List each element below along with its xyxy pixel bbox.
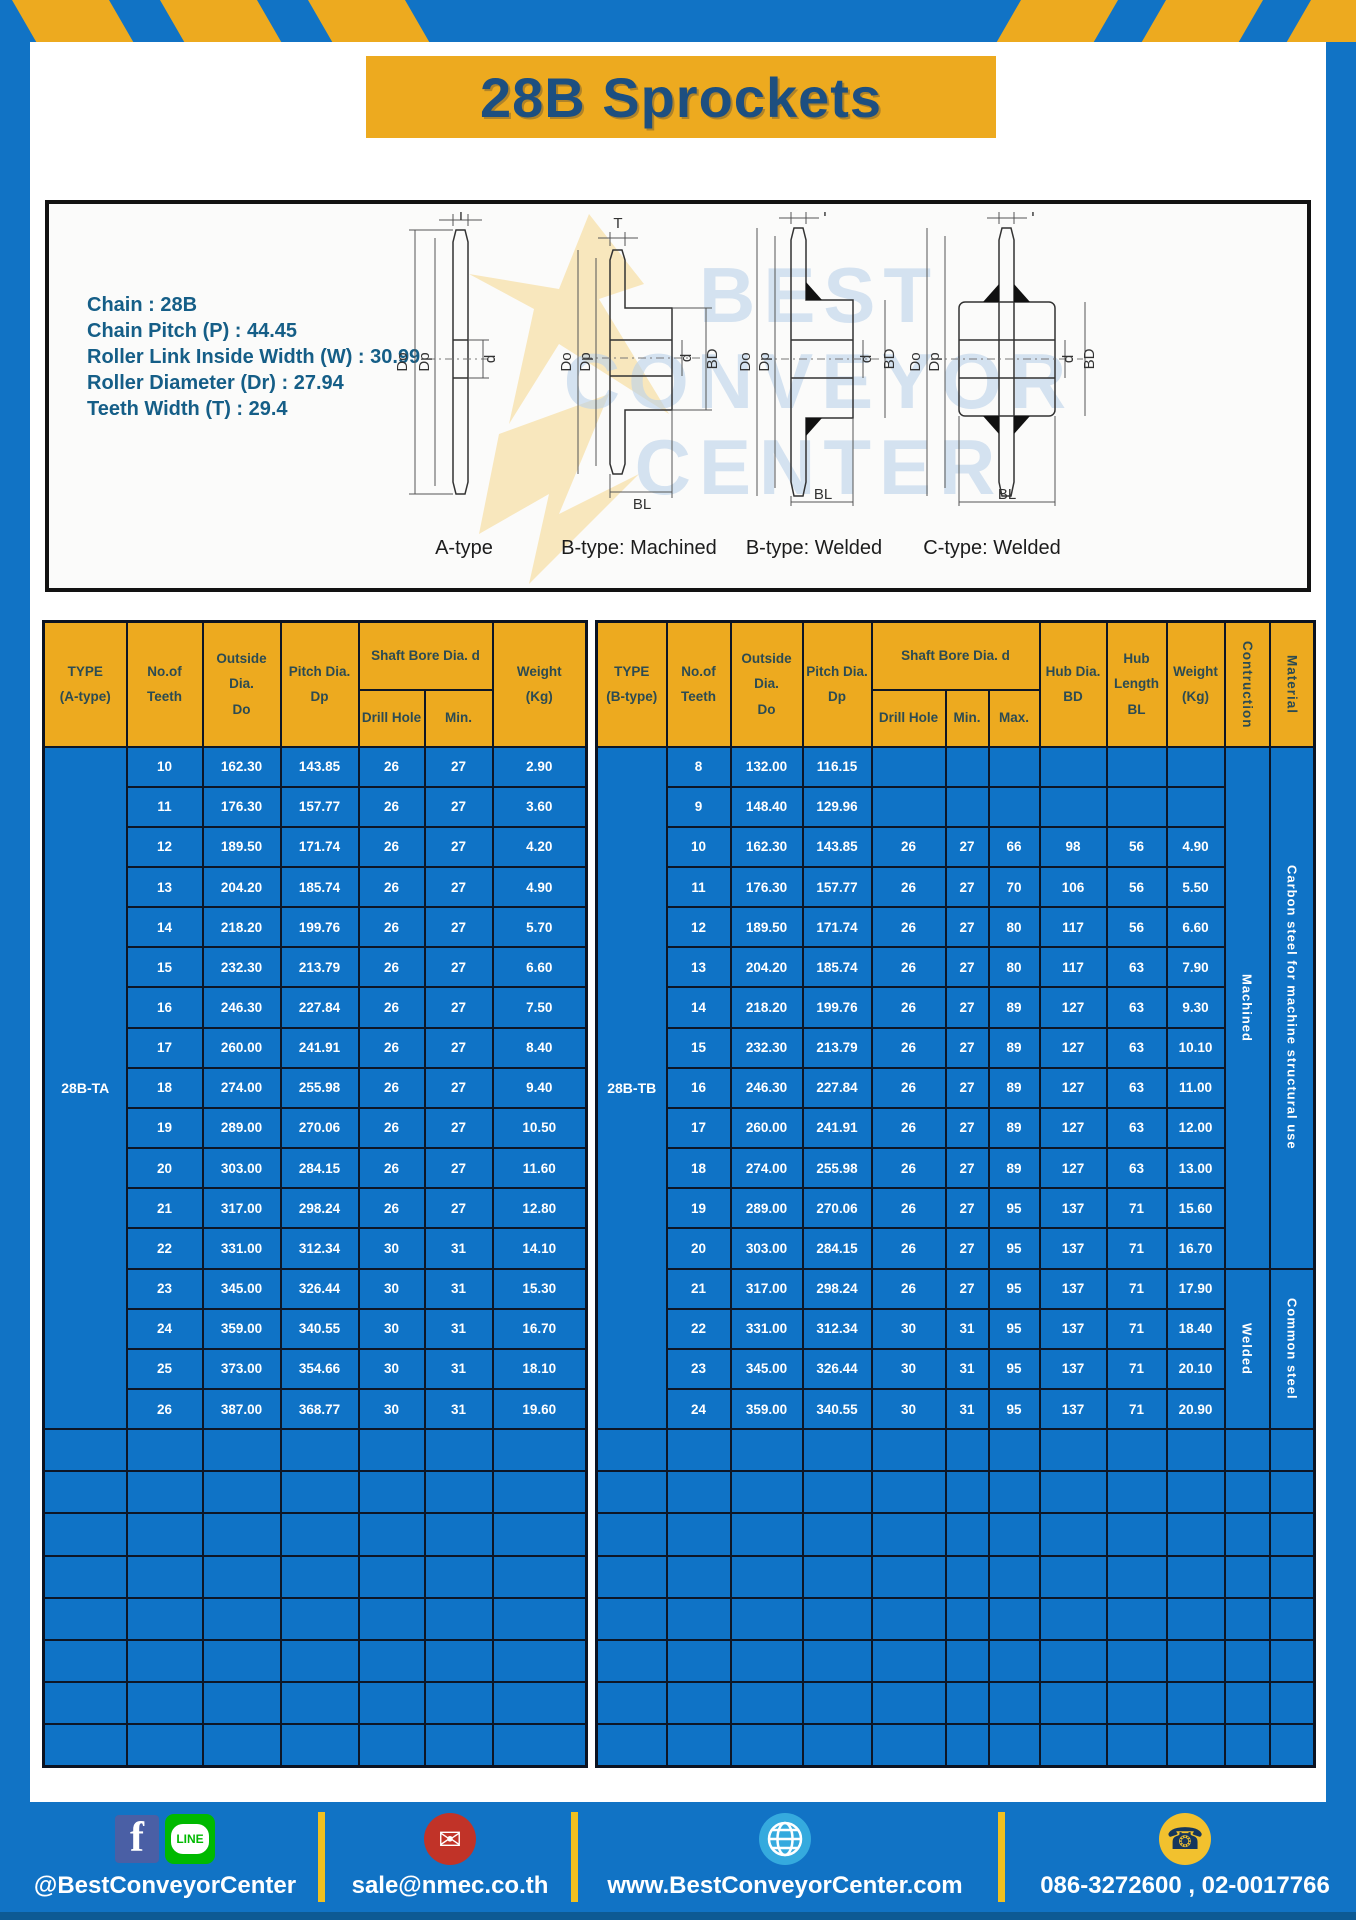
sprocket-table-a-type: TYPE (A-type) No.of Teeth Outside Dia. D…	[42, 620, 588, 1768]
cell-weight: 14.10	[493, 1228, 587, 1268]
material-cell: Common steel	[1270, 1269, 1315, 1430]
table-row: 12189.50171.74262780117566.60	[597, 907, 1315, 947]
cell-dp: 298.24	[803, 1269, 872, 1309]
empty-row	[44, 1471, 587, 1513]
cell-dp: 171.74	[803, 907, 872, 947]
cell-min: 27	[946, 987, 989, 1027]
table-row: 16246.30227.842627891276311.00	[597, 1068, 1315, 1108]
empty-cell	[872, 1513, 946, 1555]
cell-bd: 98	[1040, 827, 1107, 867]
cell-min: 31	[425, 1389, 493, 1429]
cell-min: 27	[946, 1028, 989, 1068]
empty-cell	[803, 1640, 872, 1682]
cell-min: 31	[425, 1309, 493, 1349]
empty-cell	[1225, 1471, 1270, 1513]
cell-drill: 26	[872, 947, 946, 987]
empty-cell	[731, 1429, 803, 1471]
empty-cell	[44, 1556, 127, 1598]
cell-max: 95	[989, 1389, 1040, 1429]
cell-drill: 26	[872, 1188, 946, 1228]
col-header-drill-hole: Drill Hole	[359, 690, 425, 747]
cell-drill: 30	[359, 1269, 425, 1309]
cell-min: 27	[425, 827, 493, 867]
empty-cell	[425, 1471, 493, 1513]
cell-min: 31	[425, 1349, 493, 1389]
cell-teeth: 19	[127, 1108, 203, 1148]
empty-cell	[989, 1598, 1040, 1640]
spec-line: Chain : 28B	[87, 292, 420, 318]
cell-drill: 30	[872, 1349, 946, 1389]
cell-bd: 117	[1040, 907, 1107, 947]
type-cell: 28B-TA	[44, 747, 127, 1430]
cell-teeth: 20	[127, 1148, 203, 1188]
empty-row	[44, 1640, 587, 1682]
empty-cell	[1225, 1513, 1270, 1555]
empty-cell	[359, 1513, 425, 1555]
table-row: 13204.20185.74262780117637.90	[597, 947, 1315, 987]
facebook-icon: f	[115, 1815, 159, 1863]
cell-min	[946, 747, 989, 787]
empty-cell	[203, 1724, 281, 1766]
cell-min: 27	[946, 1228, 989, 1268]
cell-min: 27	[946, 907, 989, 947]
empty-cell	[731, 1598, 803, 1640]
bottom-edge-strip	[0, 1912, 1356, 1920]
dim-bd: BD	[1081, 348, 1097, 369]
cell-drill	[872, 787, 946, 827]
cell-teeth: 16	[127, 987, 203, 1027]
cell-do: 359.00	[731, 1389, 803, 1429]
cell-teeth: 13	[127, 867, 203, 907]
cell-teeth: 21	[127, 1188, 203, 1228]
empty-cell	[667, 1640, 731, 1682]
cell-weight: 4.90	[493, 867, 587, 907]
cell-bl: 71	[1107, 1228, 1167, 1268]
empty-cell	[127, 1724, 203, 1766]
col-header-weight: Weight (Kg)	[1167, 622, 1225, 747]
cell-min: 27	[425, 747, 493, 787]
cell-teeth: 10	[127, 747, 203, 787]
diagram-a-type: Do Dp d T A-type	[379, 212, 549, 588]
table-row: 10162.30143.8526276698564.90	[597, 827, 1315, 867]
empty-row	[44, 1513, 587, 1555]
cell-drill: 26	[872, 1148, 946, 1188]
cell-dp: 157.77	[803, 867, 872, 907]
cell-weight: 9.30	[1167, 987, 1225, 1027]
cell-teeth: 13	[667, 947, 731, 987]
empty-cell	[989, 1429, 1040, 1471]
footer-email: sale@nmec.co.th	[335, 1872, 565, 1900]
empty-cell	[1107, 1598, 1167, 1640]
cell-weight: 4.90	[1167, 827, 1225, 867]
page-canvas: 28B Sprockets BEST CONVEYOR CENTER Chain…	[0, 0, 1356, 1920]
empty-cell	[667, 1724, 731, 1766]
cell-drill: 26	[872, 907, 946, 947]
empty-cell	[872, 1682, 946, 1724]
empty-cell	[44, 1724, 127, 1766]
empty-cell	[127, 1640, 203, 1682]
empty-cell	[731, 1682, 803, 1724]
cell-bl	[1107, 747, 1167, 787]
cell-teeth: 12	[127, 827, 203, 867]
cell-bd: 137	[1040, 1188, 1107, 1228]
footer-bar: f LINE @BestConveyorCenter ✉ sale@nmec.c…	[0, 1802, 1356, 1920]
empty-cell	[359, 1724, 425, 1766]
cell-weight: 8.40	[493, 1028, 587, 1068]
dim-dp: Dp	[926, 352, 943, 371]
table-row: 9148.40129.96	[597, 787, 1315, 827]
empty-cell	[872, 1429, 946, 1471]
empty-cell	[493, 1724, 587, 1766]
empty-cell	[989, 1682, 1040, 1724]
empty-row	[44, 1598, 587, 1640]
table-row: 28B-TA10162.30143.8526272.90	[44, 747, 587, 787]
empty-cell	[281, 1556, 359, 1598]
cell-drill: 26	[872, 1108, 946, 1148]
cell-dp: 199.76	[281, 907, 359, 947]
empty-cell	[946, 1556, 989, 1598]
cell-do: 303.00	[203, 1148, 281, 1188]
cell-dp: 213.79	[281, 947, 359, 987]
empty-cell	[127, 1471, 203, 1513]
cell-min: 27	[425, 987, 493, 1027]
empty-cell	[667, 1598, 731, 1640]
cell-bl: 56	[1107, 827, 1167, 867]
empty-row	[597, 1471, 1315, 1513]
cell-drill: 30	[359, 1309, 425, 1349]
footer-phone-group: ☎ 086-3272600 , 02-0017766	[1025, 1810, 1345, 1900]
empty-cell	[1270, 1640, 1315, 1682]
empty-cell	[597, 1682, 667, 1724]
footer-email-group: ✉ sale@nmec.co.th	[335, 1810, 565, 1900]
empty-cell	[597, 1471, 667, 1513]
empty-cell	[493, 1471, 587, 1513]
footer-website-group: www.BestConveyorCenter.com	[590, 1810, 980, 1900]
cell-bd: 137	[1040, 1269, 1107, 1309]
empty-cell	[1225, 1640, 1270, 1682]
cell-dp: 129.96	[803, 787, 872, 827]
cell-min: 27	[425, 1188, 493, 1228]
cell-min: 27	[425, 947, 493, 987]
cell-bl: 56	[1107, 867, 1167, 907]
col-header-outside-dia: Outside Dia. Do	[731, 622, 803, 747]
spec-line: Chain Pitch (P) : 44.45	[87, 318, 420, 344]
material-cell: Carbon steel for machine structural use	[1270, 747, 1315, 1269]
cell-drill: 26	[359, 907, 425, 947]
diagram-caption: B-type: Welded	[729, 537, 899, 560]
dim-dp: Dp	[416, 352, 433, 371]
empty-row	[597, 1429, 1315, 1471]
diagram-caption: A-type	[379, 537, 549, 560]
empty-cell	[493, 1598, 587, 1640]
cell-weight: 3.60	[493, 787, 587, 827]
cell-weight: 18.40	[1167, 1309, 1225, 1349]
cell-min: 27	[425, 787, 493, 827]
cell-min: 31	[946, 1349, 989, 1389]
col-header-min: Min.	[425, 690, 493, 747]
empty-row	[597, 1556, 1315, 1598]
empty-cell	[1167, 1556, 1225, 1598]
cell-weight: 20.90	[1167, 1389, 1225, 1429]
diagram-c-type-welded: Do Dp d BD T BL C-type: Welded	[907, 212, 1077, 588]
col-header-hub-dia: Hub Dia. BD	[1040, 622, 1107, 747]
cell-max: 80	[989, 907, 1040, 947]
empty-row	[597, 1513, 1315, 1555]
table-row: 28B-TB8132.00116.15MachinedCarbon steel …	[597, 747, 1315, 787]
cell-weight: 17.90	[1167, 1269, 1225, 1309]
cell-drill: 26	[359, 1188, 425, 1228]
dim-bd: BD	[881, 348, 898, 369]
cell-min: 27	[425, 1028, 493, 1068]
dim-bl: BL	[998, 486, 1016, 503]
cell-drill: 30	[872, 1389, 946, 1429]
cell-weight: 10.10	[1167, 1028, 1225, 1068]
cell-teeth: 15	[667, 1028, 731, 1068]
cell-weight: 15.60	[1167, 1188, 1225, 1228]
empty-cell	[1107, 1640, 1167, 1682]
empty-cell	[203, 1640, 281, 1682]
empty-cell	[803, 1724, 872, 1766]
empty-cell	[1040, 1724, 1107, 1766]
cell-bl: 63	[1107, 1108, 1167, 1148]
hazard-stripe	[1142, 0, 1263, 42]
spec-line: Roller Link Inside Width (W) : 30.99	[87, 344, 420, 370]
email-icon: ✉	[424, 1813, 476, 1865]
diagram-b-type-welded: Do Dp d BD T BL B-type: Welded	[729, 212, 899, 588]
empty-cell	[946, 1429, 989, 1471]
hazard-stripe	[1287, 0, 1356, 42]
empty-cell	[1107, 1513, 1167, 1555]
dim-t: T	[820, 212, 829, 220]
cell-teeth: 22	[127, 1228, 203, 1268]
cell-teeth: 22	[667, 1309, 731, 1349]
diagram-panel: BEST CONVEYOR CENTER Chain : 28B Chain P…	[45, 200, 1311, 592]
cell-max: 89	[989, 1028, 1040, 1068]
empty-cell	[203, 1513, 281, 1555]
empty-cell	[425, 1598, 493, 1640]
cell-min	[946, 787, 989, 827]
empty-cell	[989, 1640, 1040, 1682]
cell-dp: 340.55	[803, 1389, 872, 1429]
cell-drill: 30	[872, 1309, 946, 1349]
empty-cell	[731, 1724, 803, 1766]
cell-bd: 127	[1040, 1028, 1107, 1068]
hazard-stripe	[997, 0, 1118, 42]
cell-do: 132.00	[731, 747, 803, 787]
cell-teeth: 15	[127, 947, 203, 987]
cell-min: 27	[425, 907, 493, 947]
spec-line: Teeth Width (T) : 29.4	[87, 396, 420, 422]
empty-cell	[803, 1598, 872, 1640]
empty-cell	[281, 1682, 359, 1724]
empty-cell	[597, 1429, 667, 1471]
cell-do: 303.00	[731, 1228, 803, 1268]
dim-do: Do	[737, 352, 754, 371]
col-header-min: Min.	[946, 690, 989, 747]
cell-min: 31	[946, 1309, 989, 1349]
cell-drill: 26	[872, 1269, 946, 1309]
cell-weight: 5.50	[1167, 867, 1225, 907]
cell-min: 31	[425, 1228, 493, 1268]
cell-weight: 2.90	[493, 747, 587, 787]
cell-do: 260.00	[731, 1108, 803, 1148]
cell-do: 148.40	[731, 787, 803, 827]
cell-min: 27	[946, 1148, 989, 1188]
cell-teeth: 10	[667, 827, 731, 867]
cell-max: 95	[989, 1188, 1040, 1228]
empty-row	[597, 1640, 1315, 1682]
cell-dp: 171.74	[281, 827, 359, 867]
cell-teeth: 23	[127, 1269, 203, 1309]
empty-cell	[127, 1682, 203, 1724]
cell-do: 232.30	[203, 947, 281, 987]
empty-cell	[1270, 1682, 1315, 1724]
cell-teeth: 23	[667, 1349, 731, 1389]
cell-teeth: 24	[127, 1309, 203, 1349]
empty-cell	[946, 1598, 989, 1640]
cell-bl	[1107, 787, 1167, 827]
empty-cell	[281, 1471, 359, 1513]
cell-teeth: 12	[667, 907, 731, 947]
cell-bl: 71	[1107, 1389, 1167, 1429]
empty-cell	[1167, 1471, 1225, 1513]
cell-do: 274.00	[203, 1068, 281, 1108]
empty-cell	[1167, 1513, 1225, 1555]
cell-max: 70	[989, 867, 1040, 907]
empty-cell	[44, 1682, 127, 1724]
empty-cell	[281, 1429, 359, 1471]
cell-min: 27	[425, 1148, 493, 1188]
cell-bd: 106	[1040, 867, 1107, 907]
empty-cell	[493, 1682, 587, 1724]
cell-bl: 63	[1107, 947, 1167, 987]
cell-do: 176.30	[731, 867, 803, 907]
cell-min: 27	[425, 1108, 493, 1148]
empty-cell	[1225, 1429, 1270, 1471]
cell-teeth: 18	[127, 1068, 203, 1108]
hazard-stripe	[308, 0, 429, 42]
empty-cell	[203, 1682, 281, 1724]
empty-cell	[731, 1513, 803, 1555]
col-header-construction: Contruction	[1225, 622, 1270, 747]
spec-line: Roller Diameter (Dr) : 27.94	[87, 370, 420, 396]
empty-cell	[803, 1682, 872, 1724]
empty-cell	[1270, 1598, 1315, 1640]
cell-do: 317.00	[203, 1188, 281, 1228]
cell-max: 80	[989, 947, 1040, 987]
cell-do: 189.50	[203, 827, 281, 867]
col-header-outside-dia: Outside Dia. Do	[203, 622, 281, 747]
cell-teeth: 20	[667, 1228, 731, 1268]
cell-do: 387.00	[203, 1389, 281, 1429]
cell-teeth: 24	[667, 1389, 731, 1429]
cell-drill: 26	[872, 1028, 946, 1068]
empty-cell	[44, 1598, 127, 1640]
cell-bd: 127	[1040, 1068, 1107, 1108]
dim-d: d	[678, 354, 695, 362]
dim-d: d	[1060, 355, 1077, 363]
cell-dp: 143.85	[281, 747, 359, 787]
cell-weight: 12.80	[493, 1188, 587, 1228]
cell-weight: 11.00	[1167, 1068, 1225, 1108]
empty-cell	[872, 1598, 946, 1640]
table-row: 24359.00340.553031951377120.90	[597, 1389, 1315, 1429]
empty-cell	[1040, 1556, 1107, 1598]
cell-dp: 326.44	[803, 1349, 872, 1389]
empty-cell	[281, 1513, 359, 1555]
empty-row	[44, 1429, 587, 1471]
empty-cell	[1225, 1598, 1270, 1640]
cell-do: 162.30	[203, 747, 281, 787]
footer-social-handle: @BestConveyorCenter	[20, 1872, 310, 1900]
sprocket-table-b-type: TYPE (B-type) No.of Teeth Outside Dia. D…	[595, 620, 1316, 1768]
col-header-pitch-dia: Pitch Dia. Dp	[281, 622, 359, 747]
empty-cell	[44, 1429, 127, 1471]
empty-cell	[803, 1471, 872, 1513]
empty-cell	[597, 1598, 667, 1640]
cell-drill: 26	[359, 1028, 425, 1068]
empty-cell	[203, 1598, 281, 1640]
empty-cell	[1225, 1556, 1270, 1598]
construction-cell: Machined	[1225, 747, 1270, 1269]
empty-cell	[281, 1640, 359, 1682]
table-row: 17260.00241.912627891276312.00	[597, 1108, 1315, 1148]
footer-divider	[998, 1812, 1005, 1902]
cell-min: 31	[425, 1269, 493, 1309]
col-header-pitch-dia: Pitch Dia. Dp	[803, 622, 872, 747]
cell-dp: 284.15	[281, 1148, 359, 1188]
cell-weight	[1167, 787, 1225, 827]
empty-cell	[1167, 1724, 1225, 1766]
cell-teeth: 25	[127, 1349, 203, 1389]
cell-do: 289.00	[731, 1188, 803, 1228]
empty-cell	[1040, 1429, 1107, 1471]
dim-d: d	[482, 355, 499, 363]
cell-bd: 117	[1040, 947, 1107, 987]
footer-website: www.BestConveyorCenter.com	[590, 1872, 980, 1900]
col-header-type: TYPE (A-type)	[44, 622, 127, 747]
cell-drill: 26	[872, 867, 946, 907]
cell-drill: 26	[359, 987, 425, 1027]
diagram-b-type-machined: Do Dp d BD T BL	[554, 212, 724, 588]
cell-max: 89	[989, 1108, 1040, 1148]
empty-cell	[872, 1724, 946, 1766]
empty-cell	[359, 1429, 425, 1471]
cell-min: 27	[425, 867, 493, 907]
empty-cell	[1040, 1471, 1107, 1513]
cell-bl: 63	[1107, 1028, 1167, 1068]
cell-min: 27	[946, 947, 989, 987]
cell-drill: 26	[359, 1148, 425, 1188]
cell-weight	[1167, 747, 1225, 787]
empty-cell	[1040, 1682, 1107, 1724]
empty-cell	[493, 1640, 587, 1682]
chain-specs: Chain : 28B Chain Pitch (P) : 44.45 Roll…	[87, 292, 420, 422]
cell-min: 27	[425, 1068, 493, 1108]
cell-do: 345.00	[203, 1269, 281, 1309]
cell-bl: 71	[1107, 1188, 1167, 1228]
empty-cell	[281, 1724, 359, 1766]
cell-max: 95	[989, 1349, 1040, 1389]
empty-cell	[989, 1471, 1040, 1513]
cell-weight: 19.60	[493, 1389, 587, 1429]
cell-weight: 16.70	[1167, 1228, 1225, 1268]
cell-drill: 26	[359, 747, 425, 787]
cell-teeth: 19	[667, 1188, 731, 1228]
cell-min: 27	[946, 1188, 989, 1228]
hazard-stripes-left	[0, 0, 520, 42]
dim-bd: BD	[704, 348, 721, 369]
